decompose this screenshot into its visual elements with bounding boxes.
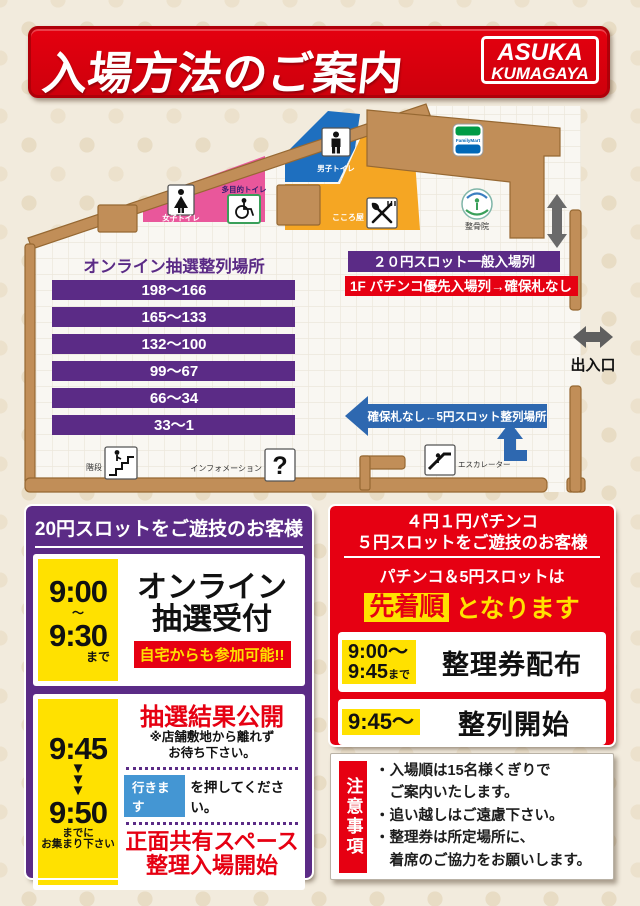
step2-time-end: 9:50	[49, 797, 107, 828]
dotted-divider	[126, 767, 298, 770]
pachinko-panel-header-line2: ５円スロットをご遊技のお客様	[338, 533, 606, 554]
notes-tab: 注意事項	[339, 761, 367, 873]
restaurant-icon	[367, 198, 397, 228]
banner-pachinko-priority: 1F パチンコ優先入場列→確保札なし	[350, 278, 572, 294]
stairs-icon	[105, 447, 137, 479]
slot-panel-header: 20円スロットをご遊技のお客様	[33, 510, 305, 546]
information-icon: ?	[265, 449, 295, 481]
go-button: 行きます	[124, 775, 185, 817]
womens-toilet-icon	[168, 185, 194, 215]
svg-text:?: ?	[272, 452, 287, 480]
mens-toilet-label: 男子トイレ	[317, 164, 355, 173]
lottery-bar-label: 198〜166	[141, 282, 206, 299]
lottery-bar-label: 165〜133	[141, 309, 206, 326]
pachinko-panel-header-line1: ４円１円パチンコ	[338, 512, 606, 533]
go-button-row: 行きます を押してください。	[124, 775, 300, 817]
note-line: ・追い越しはご遠慮下さい。	[375, 805, 607, 827]
escalator-icon	[425, 445, 455, 475]
lottery-area-title: オンライン抽選整列場所	[83, 256, 265, 276]
entry-start-line2: 整理入場開始	[124, 854, 300, 879]
familymart-logo: FamilyMart	[453, 124, 483, 156]
first-come-highlight: 先着順	[364, 593, 449, 622]
lineup-start-label: 整列開始	[426, 703, 602, 742]
womens-toilet-label: 女子トイレ	[162, 213, 200, 223]
result-note-line1: ※店舗敷地から離れず	[124, 730, 300, 746]
seikotsuin-label: 整骨院	[465, 221, 489, 231]
row1-time-box: 9:00〜 9:45まで	[342, 640, 416, 684]
online-lottery-title-line1: オンライン	[137, 572, 287, 603]
step2-deadline-line2: お集まり下さい	[41, 839, 115, 851]
row1-time-suffix: まで	[388, 669, 410, 681]
notes-box: 注意事項 ・入場順は15名様くぎりで ご案内いたします。 ・追い越しはご遠慮下さ…	[330, 753, 614, 880]
seikotsuin-logo	[462, 189, 492, 219]
step2-time-box: 9:45 ▼ ▼ ▼ 9:50 までに お集まり下さい	[38, 699, 118, 885]
page-title: 入場方法のご案内	[40, 37, 407, 102]
kokoroya-label: こころ屋	[332, 212, 364, 222]
slot-panel: 20円スロットをご遊技のお客様 9:00 〜 9:30 まで オンライン 抽選受…	[26, 506, 312, 878]
note-line: ご案内いたします。	[375, 782, 607, 804]
row1-time-end: 9:45	[348, 661, 388, 683]
go-button-suffix: を押してください。	[190, 776, 300, 816]
dotted-divider	[126, 822, 298, 825]
first-come-row: 先着順 となります	[338, 589, 606, 625]
online-lottery-step: 9:00 〜 9:30 まで オンライン 抽選受付 自宅からも参加可能!!	[33, 554, 305, 686]
pachinko-panel: ４円１円パチンコ ５円スロットをご遊技のお客様 パチンコ＆5円スロットは 先着順…	[330, 506, 614, 745]
row2-time-box: 9:45〜	[342, 709, 420, 735]
note-line: ・整理券は所定場所に、	[375, 827, 607, 849]
floor-map-svg: 女子トイレ 多目的トイレ 男子トイレ こころ屋 FamilyMart	[20, 98, 620, 500]
step2-content: 抽選結果公開 ※店舗敷地から離れず お待ち下さい。 行きます を押してください。…	[124, 699, 300, 885]
wheelchair-icon	[228, 195, 260, 223]
brand-name: ASUKA	[484, 41, 596, 65]
exit-label: 出入口	[570, 356, 615, 374]
multipurpose-toilet-label: 多目的トイレ	[222, 184, 267, 194]
escalator-label: エスカレーター	[458, 460, 511, 469]
lottery-result-title: 抽選結果公開	[124, 705, 300, 730]
result-step: 9:45 ▼ ▼ ▼ 9:50 までに お集まり下さい 抽選結果公開 ※店舗敷地…	[33, 694, 305, 890]
ticket-distribution-label: 整理券配布	[422, 643, 602, 682]
floor-map: 女子トイレ 多目的トイレ 男子トイレ こころ屋 FamilyMart	[20, 98, 620, 500]
title-banner: 入場方法のご案内 ASUKA KUMAGAYA	[28, 26, 610, 98]
divider	[344, 556, 600, 558]
online-lottery-title-line2: 抽選受付	[152, 604, 272, 635]
step1-time-end: 9:30	[49, 620, 107, 651]
step1-time-suffix: まで	[86, 651, 116, 664]
brand-location: KUMAGAYA	[484, 65, 596, 82]
banner-5yen-queue: 確保札なし←5円スロット整列場所	[368, 410, 547, 424]
banner-slot-general: ２０円スロット一般入場列	[373, 254, 535, 270]
lottery-bar-label: 66〜34	[150, 390, 199, 407]
step1-time-start: 9:00	[49, 576, 107, 607]
step1-time-box: 9:00 〜 9:30 まで	[38, 559, 118, 681]
lottery-bar-label: 99〜67	[150, 363, 198, 380]
lottery-bar-label: 33〜1	[154, 417, 194, 434]
step1-content: オンライン 抽選受付 自宅からも参加可能!!	[124, 559, 300, 681]
lottery-bar-label: 132〜100	[141, 336, 206, 353]
row1-time-line2: 9:45まで	[348, 662, 410, 682]
stairs-label: 階段	[86, 462, 102, 472]
panel-gap	[33, 686, 305, 694]
home-participation-note: 自宅からも参加可能!!	[134, 641, 291, 668]
entry-start-line1: 正面共有スペース	[124, 830, 300, 855]
first-come-suffix: となります	[455, 589, 579, 625]
result-note-line2: お待ち下さい。	[124, 746, 300, 762]
lineup-start-row: 9:45〜 整列開始	[338, 699, 606, 745]
divider	[35, 546, 303, 548]
information-label: インフォメーション	[190, 464, 262, 473]
row1-time-line1: 9:00〜	[348, 642, 410, 662]
mens-toilet-icon	[322, 128, 350, 156]
ticket-distribution-row: 9:00〜 9:45まで 整理券配布	[338, 632, 606, 692]
pachinko-subtitle: パチンコ＆5円スロットは	[338, 563, 606, 587]
brand-badge: ASUKA KUMAGAYA	[481, 36, 599, 84]
note-line: 着席のご協力をお願いします。	[375, 850, 607, 872]
row2-time: 9:45〜	[348, 711, 414, 733]
notes-body: ・入場順は15名様くぎりで ご案内いたします。 ・追い越しはご遠慮下さい。 ・整…	[375, 760, 607, 872]
poster-page: { "colors": { "red": "#E60012", "purple"…	[0, 0, 640, 906]
note-line: ・入場順は15名様くぎりで	[375, 760, 607, 782]
familymart-label: FamilyMart	[456, 138, 481, 143]
